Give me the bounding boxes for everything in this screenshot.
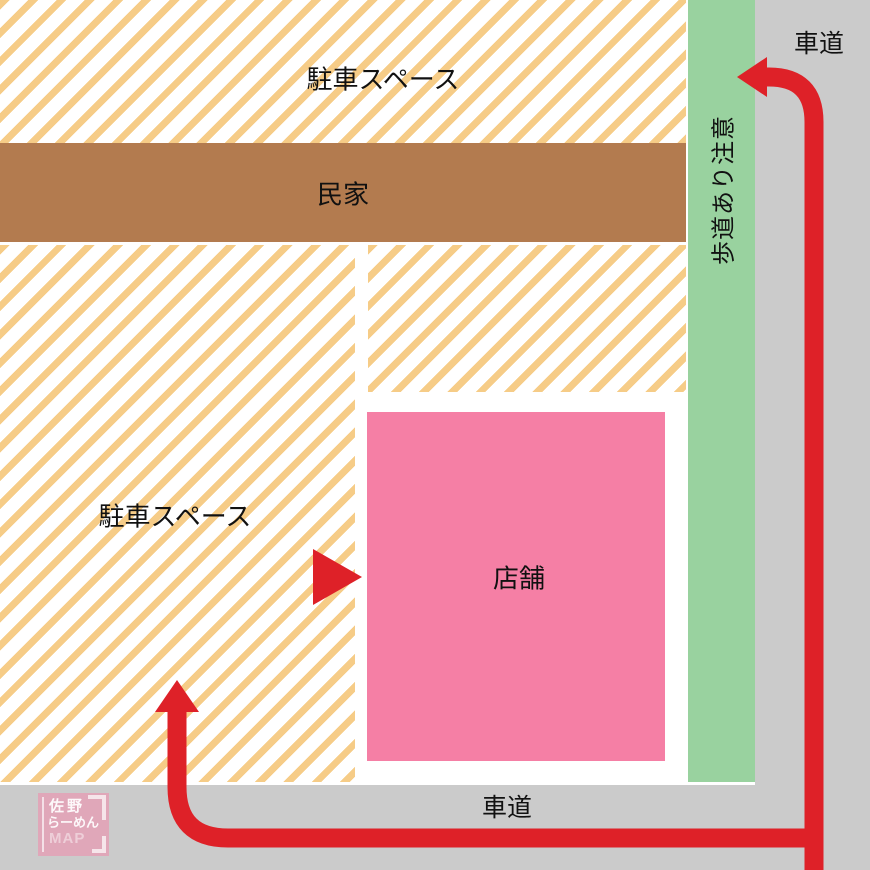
sano-ramen-map-logo: 佐野 らーめん MAP — [38, 793, 109, 856]
logo-corner-mark-top-icon — [88, 795, 106, 820]
access-map: 駐車スペース 民家 駐車スペース 店舗 歩道あり注意 車道 車道 佐野 らーめん… — [0, 0, 870, 870]
logo-corner-mark-bottom-icon — [92, 836, 106, 853]
road-label-top-right: 車道 — [794, 24, 844, 60]
road-label-bottom: 車道 — [482, 788, 532, 824]
logo-text-line3: MAP — [49, 830, 85, 847]
mid-parking-area — [368, 245, 686, 392]
right-road — [755, 0, 870, 870]
bottom-road — [0, 785, 870, 870]
left-parking-label: 駐車スペース — [99, 497, 252, 534]
top-parking-label: 駐車スペース — [307, 60, 460, 97]
store-label: 店舗 — [493, 559, 545, 596]
logo-accent-line — [42, 797, 44, 852]
sidewalk-caution-label: 歩道あり注意 — [704, 115, 739, 265]
house-label: 民家 — [317, 175, 369, 212]
